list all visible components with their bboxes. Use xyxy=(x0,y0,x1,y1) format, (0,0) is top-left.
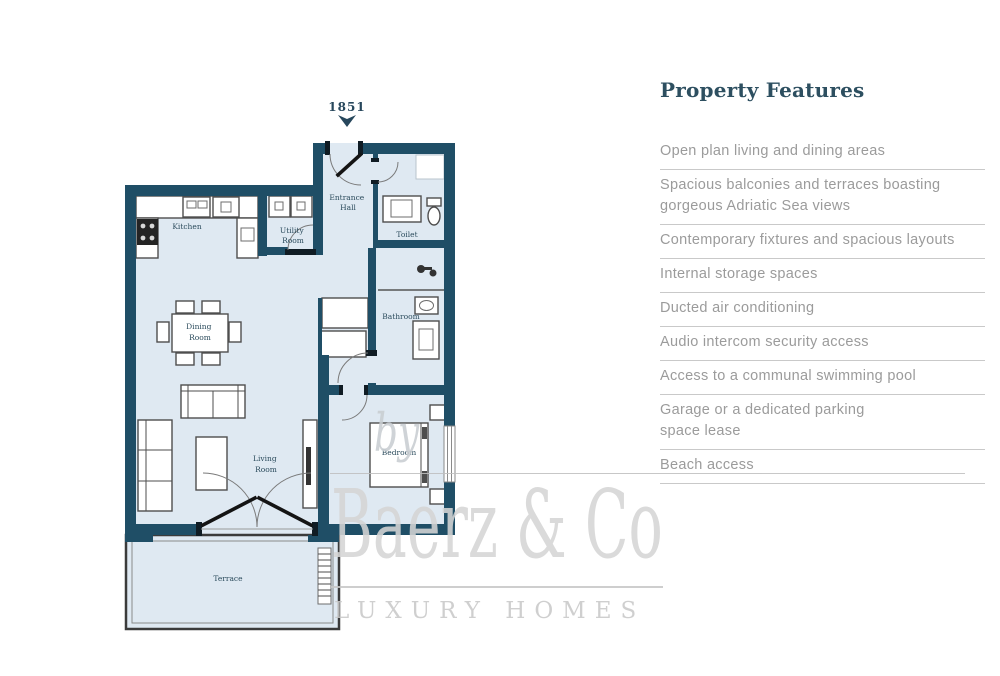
room-label-toilet: Toilet xyxy=(396,230,417,239)
unit-number-label: 1851 xyxy=(328,100,365,114)
feature-item: Ducted air conditioning xyxy=(660,293,985,327)
feature-text: Internal storage spaces xyxy=(660,264,985,285)
feature-item: Internal storage spaces xyxy=(660,259,985,293)
washer-dryer xyxy=(269,196,312,217)
feature-text: Spacious balconies and terraces boasting xyxy=(660,175,985,196)
wardrobes xyxy=(320,298,368,357)
feature-text: space lease xyxy=(660,421,985,442)
feature-text: Ducted air conditioning xyxy=(660,298,985,319)
feature-item: Spacious balconies and terraces boasting… xyxy=(660,170,985,225)
room-label-terrace: Terrace xyxy=(213,574,243,583)
feature-text: Open plan living and dining areas xyxy=(660,141,985,162)
features-list: Open plan living and dining areas Spacio… xyxy=(660,136,985,484)
feature-text: Beach access xyxy=(660,455,985,476)
feature-item: Audio intercom security access xyxy=(660,327,985,361)
entrance-arrow-icon xyxy=(338,115,356,127)
brochure-page: 1851 Kitchen Utility Room Entrance Hall … xyxy=(0,0,1000,676)
feature-item: Garage or a dedicated parking space leas… xyxy=(660,395,985,450)
room-label-bathroom: Bathroom xyxy=(382,312,420,321)
property-features-panel: Property Features Open plan living and d… xyxy=(660,78,985,484)
coffee-table xyxy=(196,437,227,490)
side-sofa xyxy=(138,420,172,511)
feature-text: gorgeous Adriatic Sea views xyxy=(660,196,985,217)
feature-item: Beach access xyxy=(660,450,985,484)
feature-text: Access to a communal swimming pool xyxy=(660,366,985,387)
feature-text: Garage or a dedicated parking xyxy=(660,400,985,421)
feature-item: Open plan living and dining areas xyxy=(660,136,985,170)
room-label-kitchen: Kitchen xyxy=(172,222,201,231)
tv-unit xyxy=(303,420,317,508)
room-label-utility: Utility Room xyxy=(280,226,306,245)
feature-text: Contemporary fixtures and spacious layou… xyxy=(660,230,985,251)
room-label-bedroom: Bedroom xyxy=(382,448,416,457)
stove-icon xyxy=(137,219,158,245)
feature-item: Contemporary fixtures and spacious layou… xyxy=(660,225,985,259)
terrace-stairs xyxy=(318,548,331,604)
feature-item: Access to a communal swimming pool xyxy=(660,361,985,395)
feature-text: Audio intercom security access xyxy=(660,332,985,353)
sofa xyxy=(181,385,245,418)
features-title: Property Features xyxy=(660,78,985,102)
bedroom-window xyxy=(444,426,455,482)
